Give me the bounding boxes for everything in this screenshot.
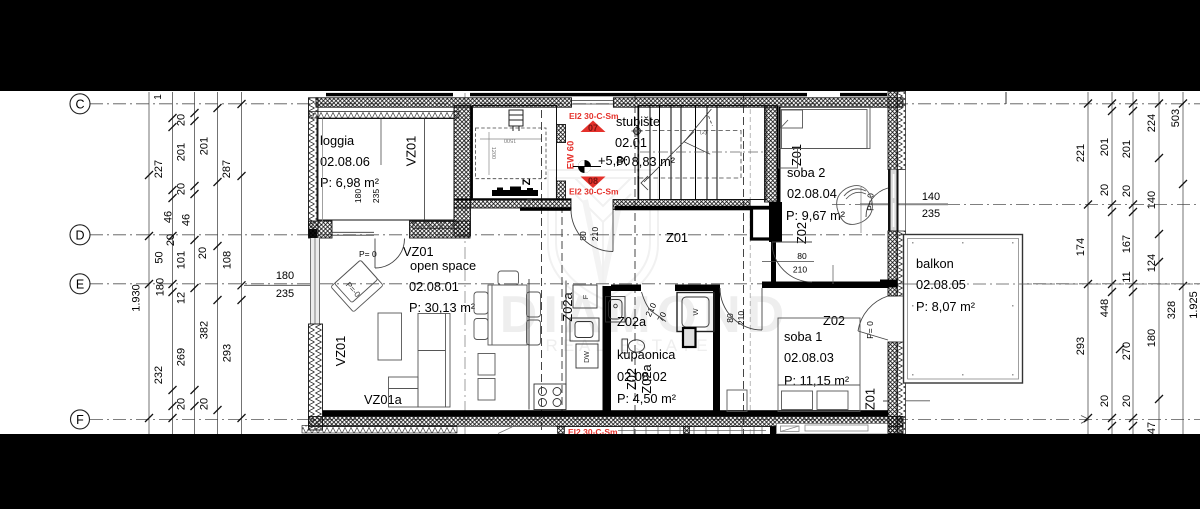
svg-text:Z02: Z02 [624,368,639,390]
svg-text:EW 60: EW 60 [566,141,577,170]
svg-text:167: 167 [1121,235,1133,253]
svg-text:D: D [75,228,84,242]
svg-text:201: 201 [199,137,211,155]
svg-text:P: 6,98 m²: P: 6,98 m² [320,175,380,190]
svg-text:P: 11,15 m²: P: 11,15 m² [784,373,850,388]
svg-text:02.08.01: 02.08.01 [409,279,459,294]
svg-text:F: F [76,413,84,427]
svg-text:VZ01: VZ01 [333,336,348,367]
svg-text:382: 382 [199,321,211,339]
svg-text:180: 180 [155,278,167,296]
svg-text:Z02: Z02 [794,222,809,244]
svg-text:F: F [581,294,590,299]
svg-text:02.01: 02.01 [615,135,647,150]
svg-text:140: 140 [1146,191,1158,209]
svg-text:293: 293 [222,344,234,362]
svg-text:kupaonica: kupaonica [617,347,676,362]
svg-text:269: 269 [176,348,188,366]
svg-text:Z01: Z01 [789,144,804,166]
svg-text:180: 180 [353,189,363,203]
svg-text:12: 12 [176,292,188,304]
svg-text:Z: Z [521,178,533,185]
svg-text:201: 201 [1121,140,1133,158]
svg-text:balkon: balkon [916,256,954,271]
svg-text:180: 180 [276,270,294,282]
svg-text:448: 448 [1099,299,1111,317]
svg-text:108: 108 [222,251,234,269]
svg-text:20: 20 [176,114,188,126]
svg-text:02.08.03: 02.08.03 [784,350,834,365]
svg-text:503: 503 [1170,109,1182,127]
svg-text:VZ01a: VZ01a [364,392,403,407]
svg-text:1200: 1200 [490,147,496,159]
svg-text:1500: 1500 [504,137,516,143]
svg-text:235: 235 [922,208,940,220]
svg-text:80: 80 [797,251,807,261]
svg-text:C: C [75,97,84,111]
svg-text:+5,80: +5,80 [598,153,630,168]
svg-text:328: 328 [1166,301,1178,319]
svg-text:11: 11 [1121,271,1133,282]
svg-text:soba 1: soba 1 [784,329,822,344]
svg-text:20: 20 [176,398,188,410]
svg-text:287: 287 [221,160,233,178]
svg-text:210: 210 [793,265,807,275]
svg-text:124: 124 [1146,254,1158,272]
svg-text:VZ01: VZ01 [403,244,434,259]
svg-text:224: 224 [1146,114,1158,132]
svg-text:02.08.04: 02.08.04 [787,186,837,201]
svg-text:20: 20 [199,398,211,410]
svg-text:Z01: Z01 [666,230,688,245]
svg-text:180: 180 [1146,329,1158,347]
svg-text:EI2 30-C-Sm: EI2 30-C-Sm [569,111,619,121]
svg-text:201: 201 [176,143,188,161]
svg-text:Z01: Z01 [863,388,878,410]
svg-text:20: 20 [1121,185,1133,197]
svg-text:174: 174 [1075,238,1087,256]
svg-text:DW: DW [584,351,591,363]
svg-text:E: E [76,277,84,291]
svg-text:20: 20 [1121,395,1133,407]
svg-text:50: 50 [154,251,166,263]
svg-text:221: 221 [1075,144,1087,162]
svg-text:VZ01: VZ01 [404,136,419,167]
svg-text:Z02a: Z02a [639,364,654,394]
svg-text:1.925: 1.925 [1188,291,1200,319]
svg-text:02.08.06: 02.08.06 [320,154,370,169]
svg-text:293: 293 [1075,337,1087,355]
svg-text:210: 210 [736,311,746,325]
svg-text:(8): (8) [527,198,533,205]
svg-text:soba 2: soba 2 [787,165,825,180]
svg-text:47: 47 [1146,422,1158,434]
svg-text:20: 20 [1099,184,1111,196]
svg-text:07: 07 [588,123,598,133]
svg-text:232: 232 [153,366,165,384]
svg-text:235: 235 [276,288,294,300]
svg-text:140: 140 [922,191,940,203]
svg-text:Z02: Z02 [823,313,845,328]
svg-text:loggia: loggia [320,133,355,148]
svg-text:235: 235 [371,189,381,203]
svg-text:20: 20 [165,234,177,246]
svg-text:(2): (2) [700,130,707,136]
svg-text:20: 20 [197,247,209,259]
svg-text:P= 0: P= 0 [359,249,377,259]
svg-text:270: 270 [1121,342,1133,360]
svg-text:46: 46 [181,214,193,226]
svg-text:EI2 30-C-Sm: EI2 30-C-Sm [569,187,619,197]
svg-text:201: 201 [1099,138,1111,156]
svg-text:210: 210 [590,227,600,241]
svg-text:20: 20 [1099,395,1111,407]
svg-text:open space: open space [410,258,476,273]
svg-text:W: W [691,308,700,316]
svg-text:P= 0: P= 0 [865,321,875,339]
svg-text:P: 8,07 m²: P: 8,07 m² [916,299,976,314]
svg-text:80: 80 [725,313,735,323]
svg-text:1.930: 1.930 [130,284,142,312]
svg-text:227: 227 [153,160,165,178]
svg-text:02.08.05: 02.08.05 [916,277,966,292]
svg-text:P: 30,13 m²: P: 30,13 m² [409,300,476,315]
svg-text:46: 46 [163,211,175,223]
svg-text:1: 1 [153,94,164,100]
svg-text:101: 101 [176,251,188,269]
svg-text:20: 20 [176,183,188,195]
svg-text:08: 08 [588,176,598,186]
svg-text:P: 9,67 m²: P: 9,67 m² [786,208,846,223]
